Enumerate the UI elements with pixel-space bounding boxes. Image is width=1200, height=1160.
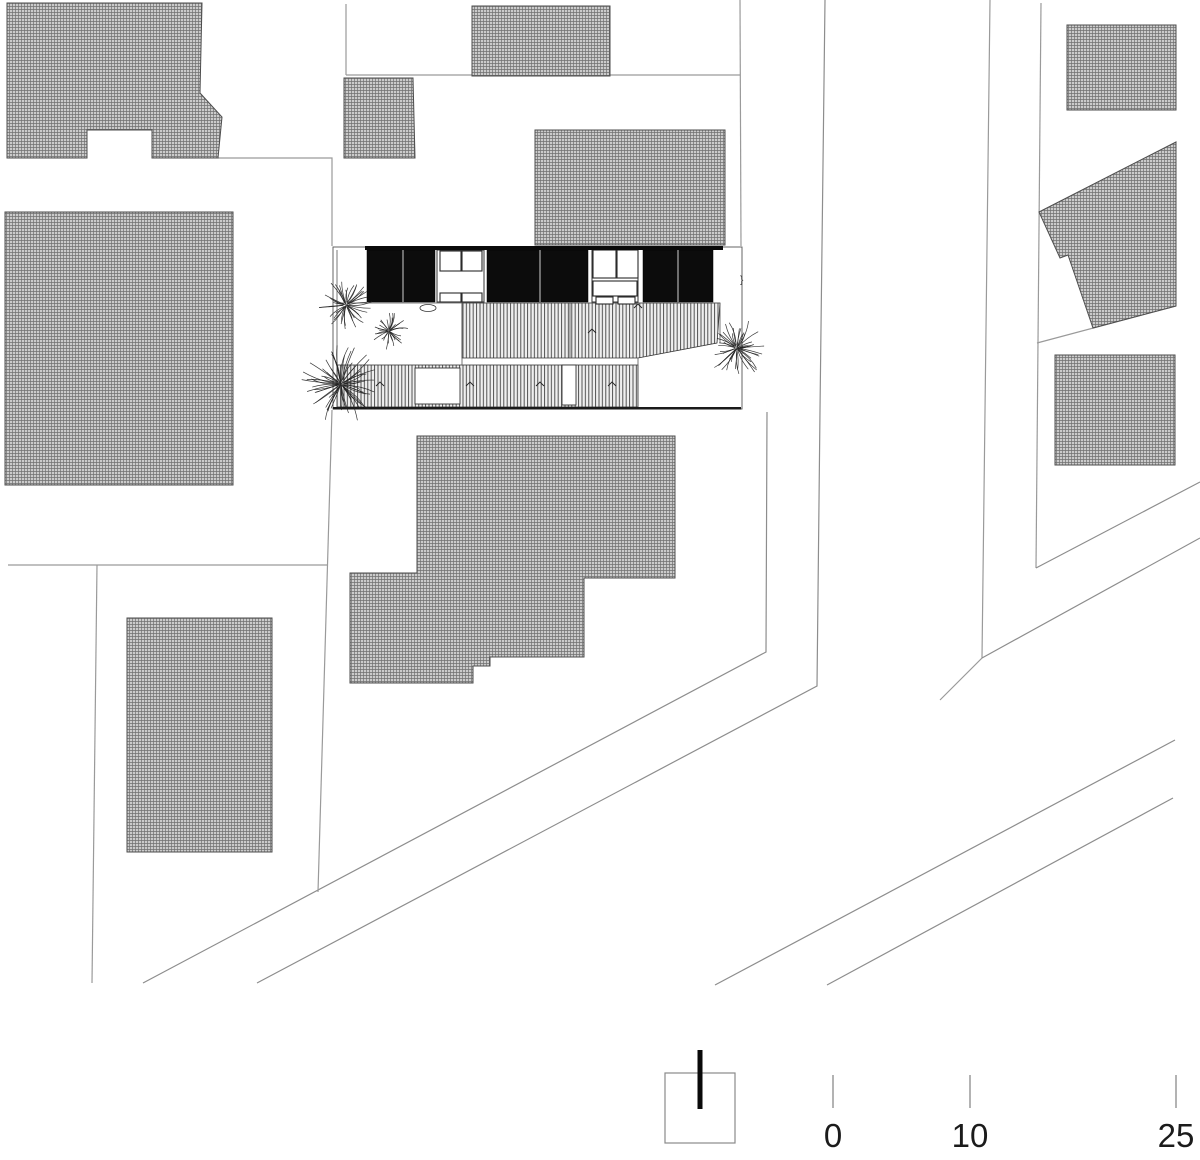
parcel-line <box>318 410 332 892</box>
scale-bar <box>665 1050 1176 1143</box>
road-line <box>1036 482 1200 568</box>
parcel-line <box>740 0 741 246</box>
neighbor-building-top-left <box>7 3 222 158</box>
skylight-cell <box>440 251 461 271</box>
scale-label-10: 10 <box>952 1119 989 1152</box>
site-plan-drawing: } <box>0 0 1200 1160</box>
skylight-cell <box>462 293 482 302</box>
main-lower-wing <box>337 365 638 407</box>
parcel-line <box>92 565 97 983</box>
neighbor-building-left <box>5 212 233 485</box>
skylight-cell <box>593 250 616 278</box>
road-line <box>715 740 1175 985</box>
neighbor-building-right-angled <box>1039 142 1176 328</box>
neighbor-building-right-lower <box>1055 355 1175 465</box>
roof-glass-panel <box>487 250 588 302</box>
roof-opening <box>415 368 460 404</box>
hatched-buildings-layer <box>5 3 1176 852</box>
parcel-line <box>218 158 332 246</box>
skylight-cell <box>617 250 638 278</box>
door-swing-mark <box>420 305 436 312</box>
main-top-wall <box>365 246 723 250</box>
main-bottom-wall <box>333 407 741 410</box>
skylight-cell <box>440 293 461 302</box>
skylight-cell <box>462 251 482 271</box>
neighbor-building-middle <box>535 130 725 245</box>
roof-glass-panel <box>367 250 435 302</box>
parcel-line <box>1036 3 1041 568</box>
neighbor-building-top-middle <box>472 6 610 76</box>
scale-label-25: 25 <box>1158 1119 1195 1152</box>
parcel-line <box>940 0 990 700</box>
roof-opening <box>562 365 576 405</box>
skylight-cell <box>593 281 637 296</box>
skylight-cell <box>596 297 613 304</box>
road-line <box>827 798 1173 985</box>
main-building: } <box>333 246 744 410</box>
neighbor-building-bottom-left <box>127 618 272 852</box>
annotation-mark: } <box>740 275 744 286</box>
road-line <box>982 538 1200 658</box>
neighbor-building-center-south <box>350 436 675 683</box>
site-plan-page: } 0 10 25 <box>0 0 1200 1160</box>
neighbor-building-top-right <box>1067 25 1176 110</box>
scale-label-0: 0 <box>824 1119 842 1152</box>
skylight-cell <box>618 297 635 304</box>
neighbor-building-mid-small <box>344 78 415 158</box>
